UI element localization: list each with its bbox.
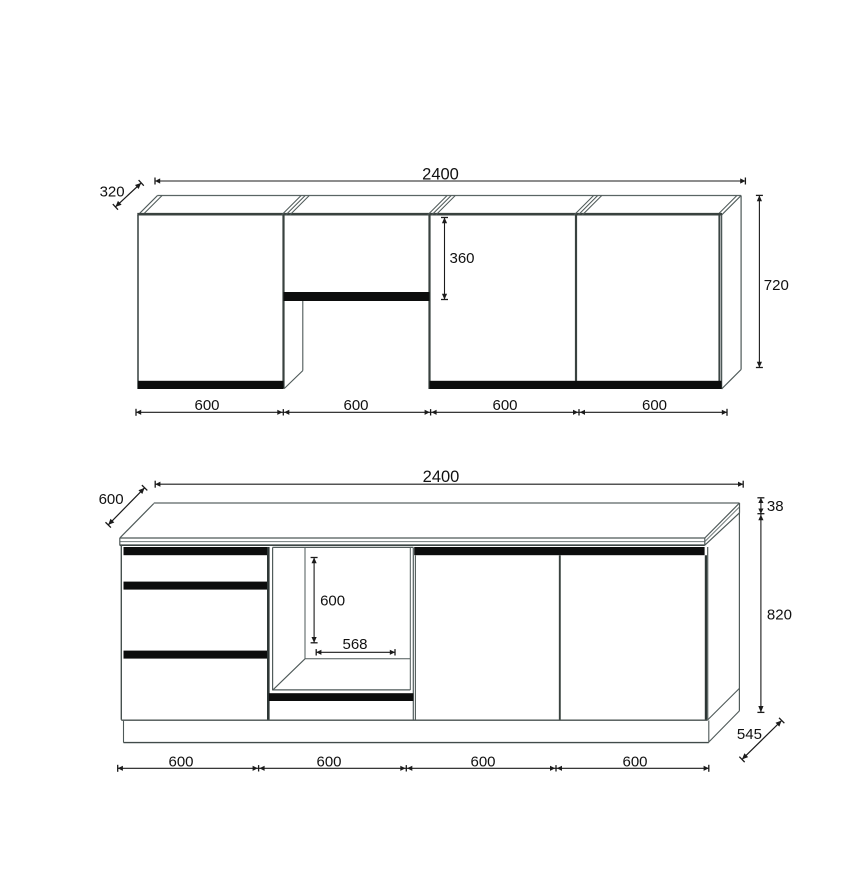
svg-text:600: 600	[316, 753, 341, 770]
svg-text:600: 600	[320, 593, 345, 610]
svg-text:600: 600	[622, 753, 647, 770]
svg-text:2400: 2400	[423, 468, 460, 486]
svg-text:2400: 2400	[422, 166, 459, 184]
svg-text:600: 600	[99, 491, 124, 508]
svg-text:600: 600	[168, 753, 193, 770]
svg-text:320: 320	[100, 184, 125, 201]
svg-text:360: 360	[450, 250, 475, 267]
svg-text:38: 38	[767, 498, 784, 515]
svg-text:568: 568	[342, 636, 367, 653]
svg-text:600: 600	[194, 397, 219, 414]
svg-text:545: 545	[737, 726, 762, 743]
svg-text:600: 600	[343, 397, 368, 414]
svg-text:720: 720	[764, 277, 789, 294]
svg-text:600: 600	[492, 397, 517, 414]
svg-text:600: 600	[470, 753, 495, 770]
svg-text:820: 820	[767, 607, 792, 624]
svg-text:600: 600	[642, 397, 667, 414]
